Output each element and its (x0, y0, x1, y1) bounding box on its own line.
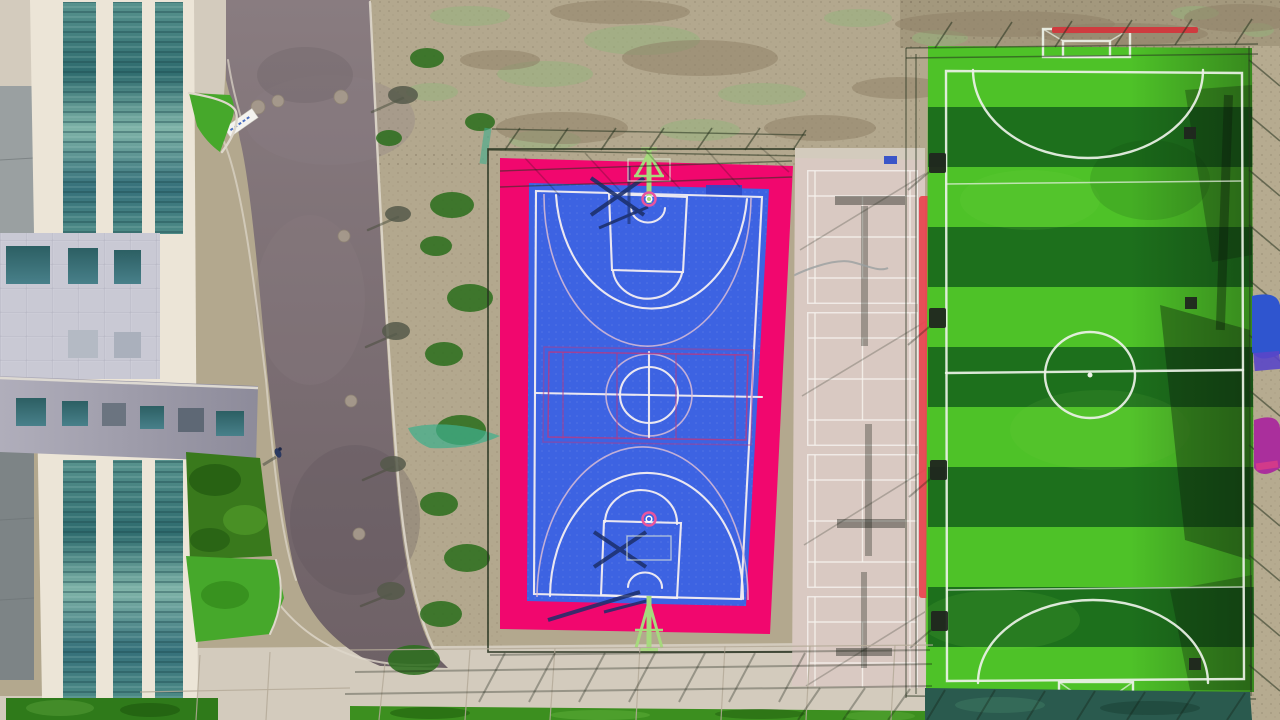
manhole-cover (353, 528, 365, 540)
manhole-cover (272, 95, 284, 107)
basketball-court (488, 128, 806, 653)
aerial-photo-stage (0, 0, 1280, 720)
pitch-side-bench (931, 611, 948, 631)
pole-shadow (865, 424, 872, 556)
dirt-patch (460, 50, 540, 70)
manhole-cover (338, 230, 350, 242)
shrub (430, 192, 474, 218)
shrub (420, 601, 462, 627)
shrub (410, 48, 444, 68)
roadside-tree (380, 456, 406, 472)
window (68, 248, 98, 284)
shrub (376, 130, 402, 146)
badminton-strip (779, 148, 931, 720)
floodlight-base (1189, 658, 1201, 670)
window (6, 246, 50, 284)
shrub (420, 236, 452, 256)
pitch-side-bench (929, 153, 946, 173)
window (140, 406, 164, 429)
light-fixture-shadow (837, 519, 905, 528)
manhole-cover (334, 90, 348, 104)
shrub (447, 284, 493, 312)
light-fixture-shadow (835, 196, 905, 205)
window (178, 408, 204, 432)
roadside-tree (382, 322, 410, 340)
moss-patch (718, 83, 806, 105)
shrub (444, 544, 490, 572)
floodlight-base (1184, 127, 1196, 139)
dirt-patch (622, 40, 778, 76)
moss-patch (824, 9, 892, 27)
moss-patch (430, 6, 510, 26)
blue-bin (884, 156, 897, 164)
pole-shadow (861, 206, 868, 346)
floodlight-base (1185, 297, 1197, 309)
soccer-field (906, 19, 1280, 712)
tiled-side-wall (0, 233, 160, 379)
dirt-patch (764, 115, 876, 141)
aerial-photo-canvas (0, 0, 1280, 720)
window (114, 332, 141, 358)
roof-slab (0, 430, 34, 680)
shrub (465, 113, 495, 131)
shrub (420, 492, 458, 516)
manhole-cover (345, 395, 357, 407)
glass-strip (63, 460, 183, 698)
window (216, 411, 244, 436)
roadside-tree (385, 206, 411, 222)
window (16, 398, 46, 426)
window-band (0, 376, 258, 462)
roadside-tree (388, 86, 418, 104)
glass-strip (63, 2, 183, 234)
moss-patch (660, 119, 740, 141)
window (102, 403, 126, 426)
pitch-side-bench (930, 460, 947, 480)
pitch-side-bench (929, 308, 946, 328)
window (114, 250, 141, 284)
shrub (425, 342, 463, 366)
window (62, 401, 88, 426)
window (68, 330, 98, 358)
roadside-tree (377, 582, 405, 600)
dirt-patch (550, 0, 690, 24)
shaded-bottom-strip (925, 688, 1252, 720)
